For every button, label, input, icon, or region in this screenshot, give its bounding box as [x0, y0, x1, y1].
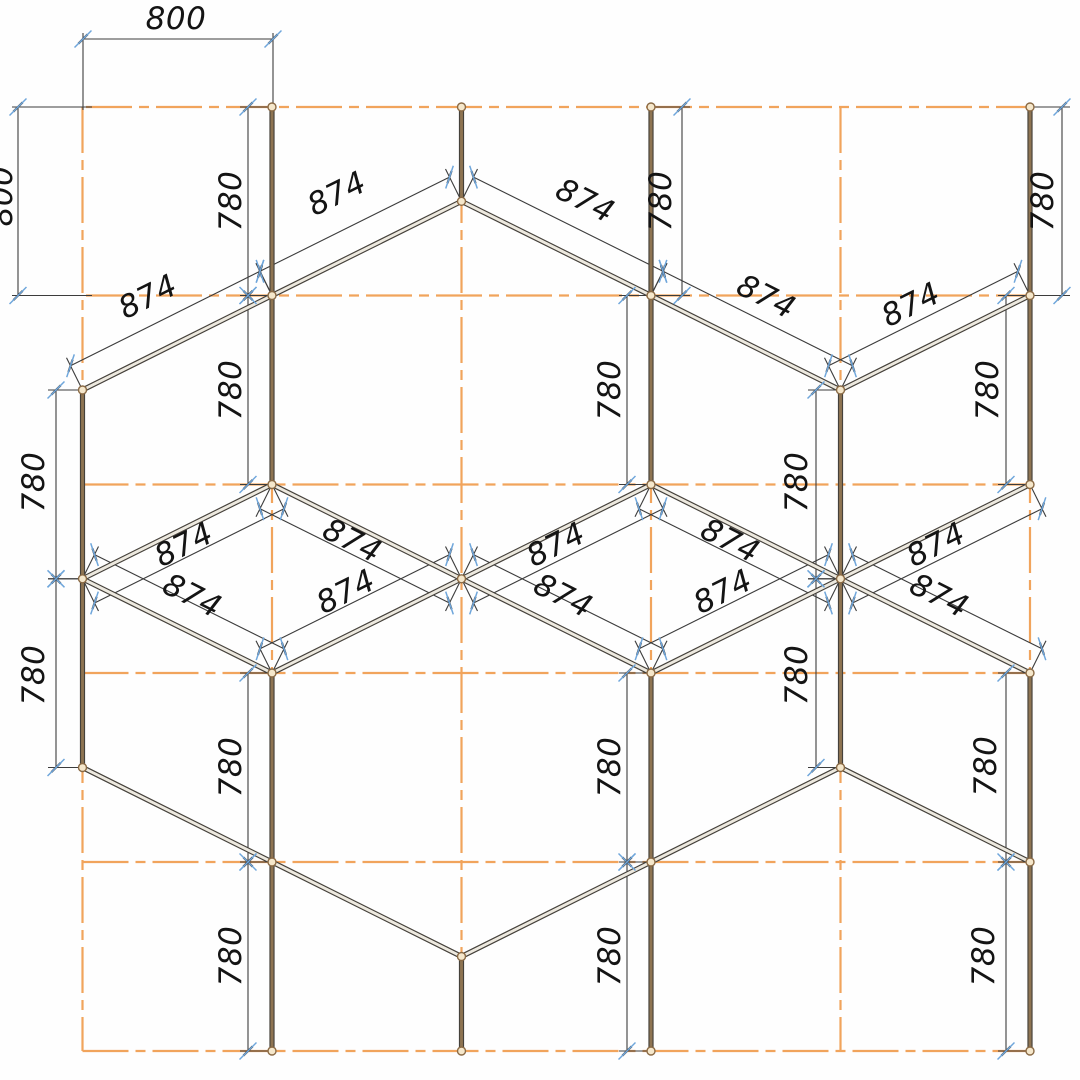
node-joint-marker — [647, 292, 655, 300]
node-joint-marker — [79, 764, 87, 772]
dimension-label: 780 — [968, 736, 1004, 797]
dimension-label: 800 — [146, 1, 207, 37]
dimension-label: 780 — [779, 452, 815, 513]
node-joint-marker — [1026, 669, 1034, 677]
dimension-label: 780 — [213, 360, 249, 421]
node-joint-marker — [458, 575, 466, 583]
node-joint-marker — [268, 669, 276, 677]
dimension-label: 780 — [592, 926, 628, 987]
dimension-label: 780 — [966, 926, 1002, 987]
dimension-label: 780 — [213, 171, 249, 232]
dimension-label: 780 — [213, 926, 249, 987]
node-joint-marker — [647, 481, 655, 489]
dimension-label: 780 — [592, 360, 628, 421]
dimension-label: 780 — [1025, 171, 1061, 232]
node-joint-marker — [458, 1047, 466, 1055]
node-joint-marker — [268, 292, 276, 300]
node-joint-marker — [1026, 858, 1034, 866]
node-joint-marker — [268, 103, 276, 111]
node-joint-marker — [458, 103, 466, 111]
node-joint-marker — [268, 481, 276, 489]
node-joint-marker — [79, 386, 87, 394]
node-joint-marker — [647, 858, 655, 866]
node-joint-marker — [647, 1047, 655, 1055]
node-joint-marker — [837, 575, 845, 583]
node-joint-marker — [1026, 103, 1034, 111]
node-joint-marker — [268, 858, 276, 866]
node-joint-marker — [1026, 292, 1034, 300]
node-joint-marker — [1026, 481, 1034, 489]
dimension-label: 780 — [592, 737, 628, 798]
node-joint-marker — [79, 575, 87, 583]
dimension-label: 780 — [643, 171, 679, 232]
dimension-label: 780 — [16, 645, 52, 706]
dimension-label: 780 — [779, 645, 815, 706]
dimension-label: 780 — [16, 452, 52, 513]
dimension-label: 800 — [0, 166, 20, 227]
node-joint-marker — [837, 386, 845, 394]
node-joint-marker — [647, 669, 655, 677]
node-joint-marker — [837, 764, 845, 772]
node-joint-marker — [458, 197, 466, 205]
structural-elevation-drawing: 8008007807807807807807807807807807807807… — [0, 0, 1080, 1080]
node-joint-marker — [647, 103, 655, 111]
node-joint-marker — [458, 953, 466, 961]
node-joint-marker — [1026, 1047, 1034, 1055]
node-joint-marker — [268, 1047, 276, 1055]
cad-viewport: 8008007807807807807807807807807807807807… — [0, 0, 1080, 1080]
dimension-label: 780 — [970, 360, 1006, 421]
dimension-label: 780 — [213, 737, 249, 798]
